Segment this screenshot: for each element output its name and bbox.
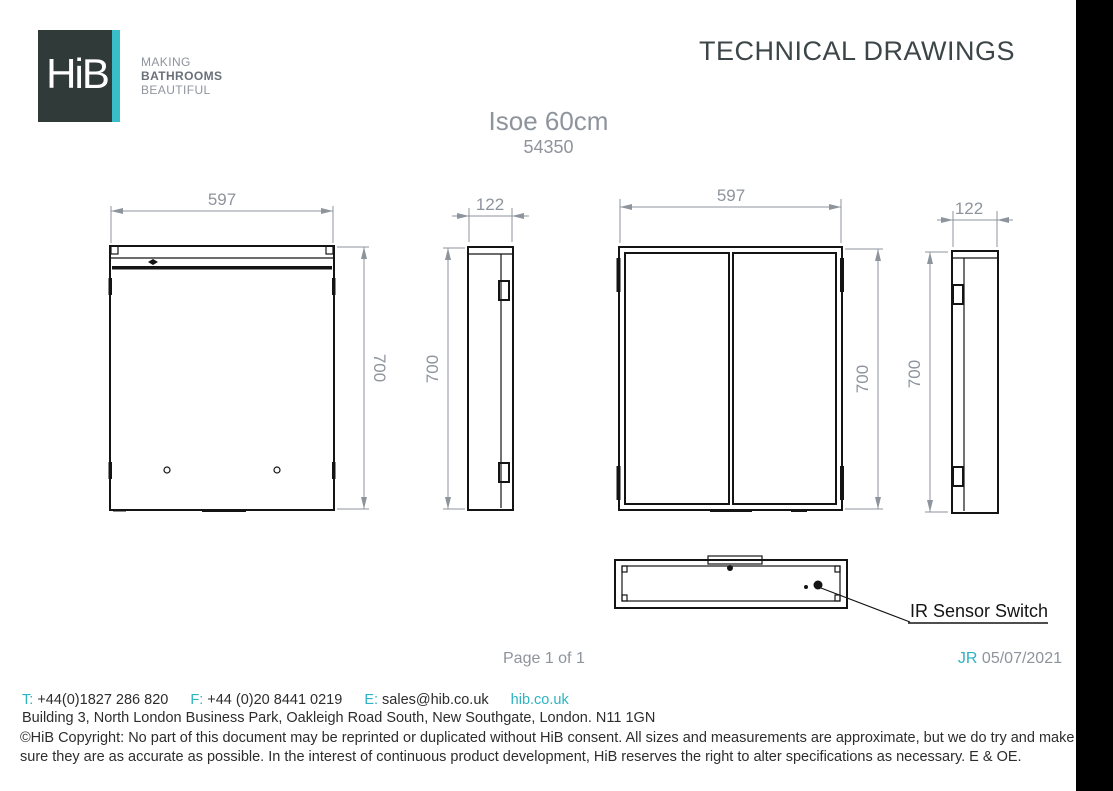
phone-number: +44(0)1827 286 820 bbox=[37, 692, 168, 708]
sensor-diamond-icon bbox=[148, 259, 158, 265]
side-view-right: 122 700 bbox=[905, 199, 1013, 513]
page-indicator: Page 1 of 1 bbox=[503, 650, 585, 668]
revision-initials: JR bbox=[958, 650, 978, 667]
scan-edge-strip bbox=[1076, 0, 1113, 791]
company-address: Building 3, North London Business Park, … bbox=[22, 710, 655, 726]
dim-width-front-double: 597 bbox=[717, 186, 745, 205]
dim-depth-side-left: 122 bbox=[476, 195, 504, 214]
fax-number: +44 (0)20 8441 0219 bbox=[207, 692, 342, 708]
technical-drawing-sheet: HiB MAKING BATHROOMS BEAUTIFUL TECHNICAL… bbox=[0, 0, 1113, 791]
dim-width-front-single: 597 bbox=[208, 190, 236, 209]
front-view-double-door: 597 700 bbox=[617, 186, 884, 512]
ir-sensor-callout: IR Sensor Switch bbox=[910, 601, 1048, 621]
revision-date: 05/07/2021 bbox=[982, 650, 1062, 667]
callout-leader-line bbox=[821, 588, 910, 622]
phone-group: T: +44(0)1827 286 820 bbox=[22, 692, 168, 708]
dim-height-side-right: 700 bbox=[905, 360, 924, 388]
dim-height-front-single: 700 bbox=[370, 354, 389, 382]
dim-height-front-double: 700 bbox=[853, 365, 872, 393]
light-strip bbox=[112, 266, 332, 270]
fax-label: F: bbox=[190, 692, 203, 708]
email-group: E: sales@hib.co.uk bbox=[364, 692, 488, 708]
bottom-view: IR Sensor Switch bbox=[615, 556, 1048, 623]
email-address: sales@hib.co.uk bbox=[382, 692, 489, 708]
dim-height-side-left: 700 bbox=[423, 355, 442, 383]
revision-stamp: JR 05/07/2021 bbox=[930, 650, 1062, 668]
email-label: E: bbox=[364, 692, 378, 708]
dim-depth-side-right: 122 bbox=[955, 199, 983, 218]
phone-label: T: bbox=[22, 692, 33, 708]
copyright-notice: ©HiB Copyright: No part of this document… bbox=[20, 729, 1078, 766]
fax-group: F: +44 (0)20 8441 0219 bbox=[190, 692, 342, 708]
front-view-single-door: 597 700 bbox=[109, 190, 390, 512]
side-view-left: 122 700 bbox=[423, 195, 529, 510]
drawing-views: 597 700 122 bbox=[0, 0, 1113, 791]
contact-line: T: +44(0)1827 286 820F: +44 (0)20 8441 0… bbox=[22, 692, 569, 708]
website-link[interactable]: hib.co.uk bbox=[511, 692, 569, 708]
